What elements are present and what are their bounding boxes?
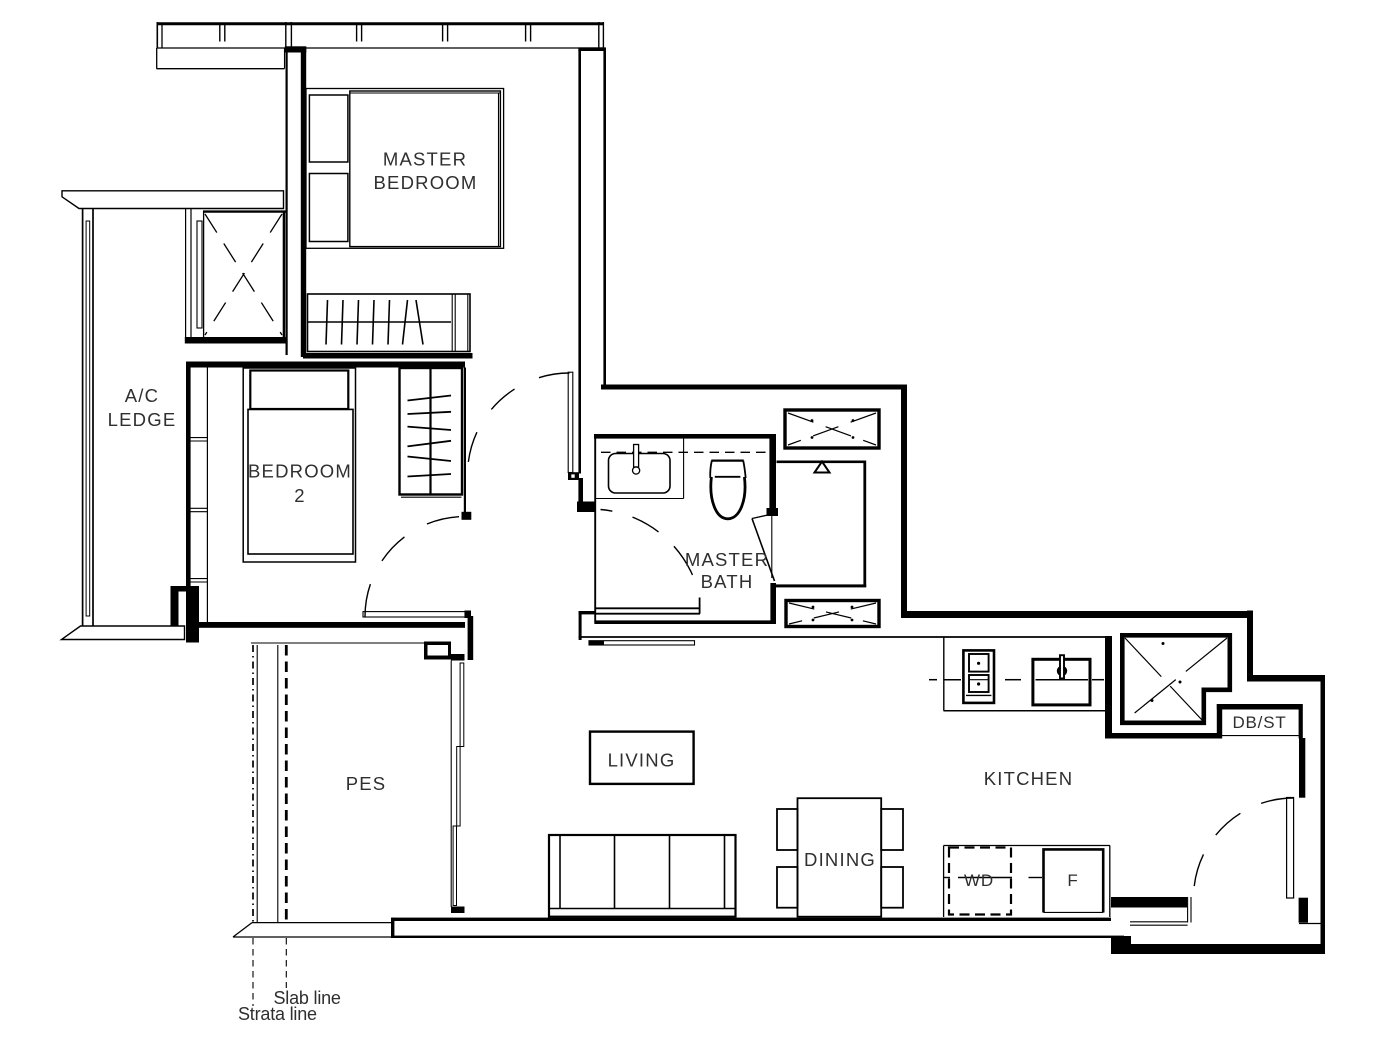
svg-text:BEDROOM: BEDROOM — [374, 172, 478, 193]
svg-text:Strata line: Strata line — [238, 1004, 317, 1024]
svg-text:WD: WD — [964, 871, 994, 890]
svg-text:DINING: DINING — [804, 849, 876, 870]
svg-text:LIVING: LIVING — [608, 750, 676, 771]
svg-text:2: 2 — [294, 485, 306, 506]
svg-text:KITCHEN: KITCHEN — [984, 768, 1074, 789]
svg-text:MASTER: MASTER — [685, 549, 769, 570]
svg-text:LEDGE: LEDGE — [108, 409, 177, 430]
svg-text:DB/ST: DB/ST — [1232, 713, 1286, 732]
svg-text:BATH: BATH — [701, 571, 754, 592]
svg-text:MASTER: MASTER — [383, 149, 467, 170]
svg-text:A/C: A/C — [125, 385, 159, 406]
svg-text:F: F — [1067, 871, 1078, 890]
svg-text:PES: PES — [346, 773, 387, 794]
svg-text:BEDROOM: BEDROOM — [248, 461, 352, 482]
